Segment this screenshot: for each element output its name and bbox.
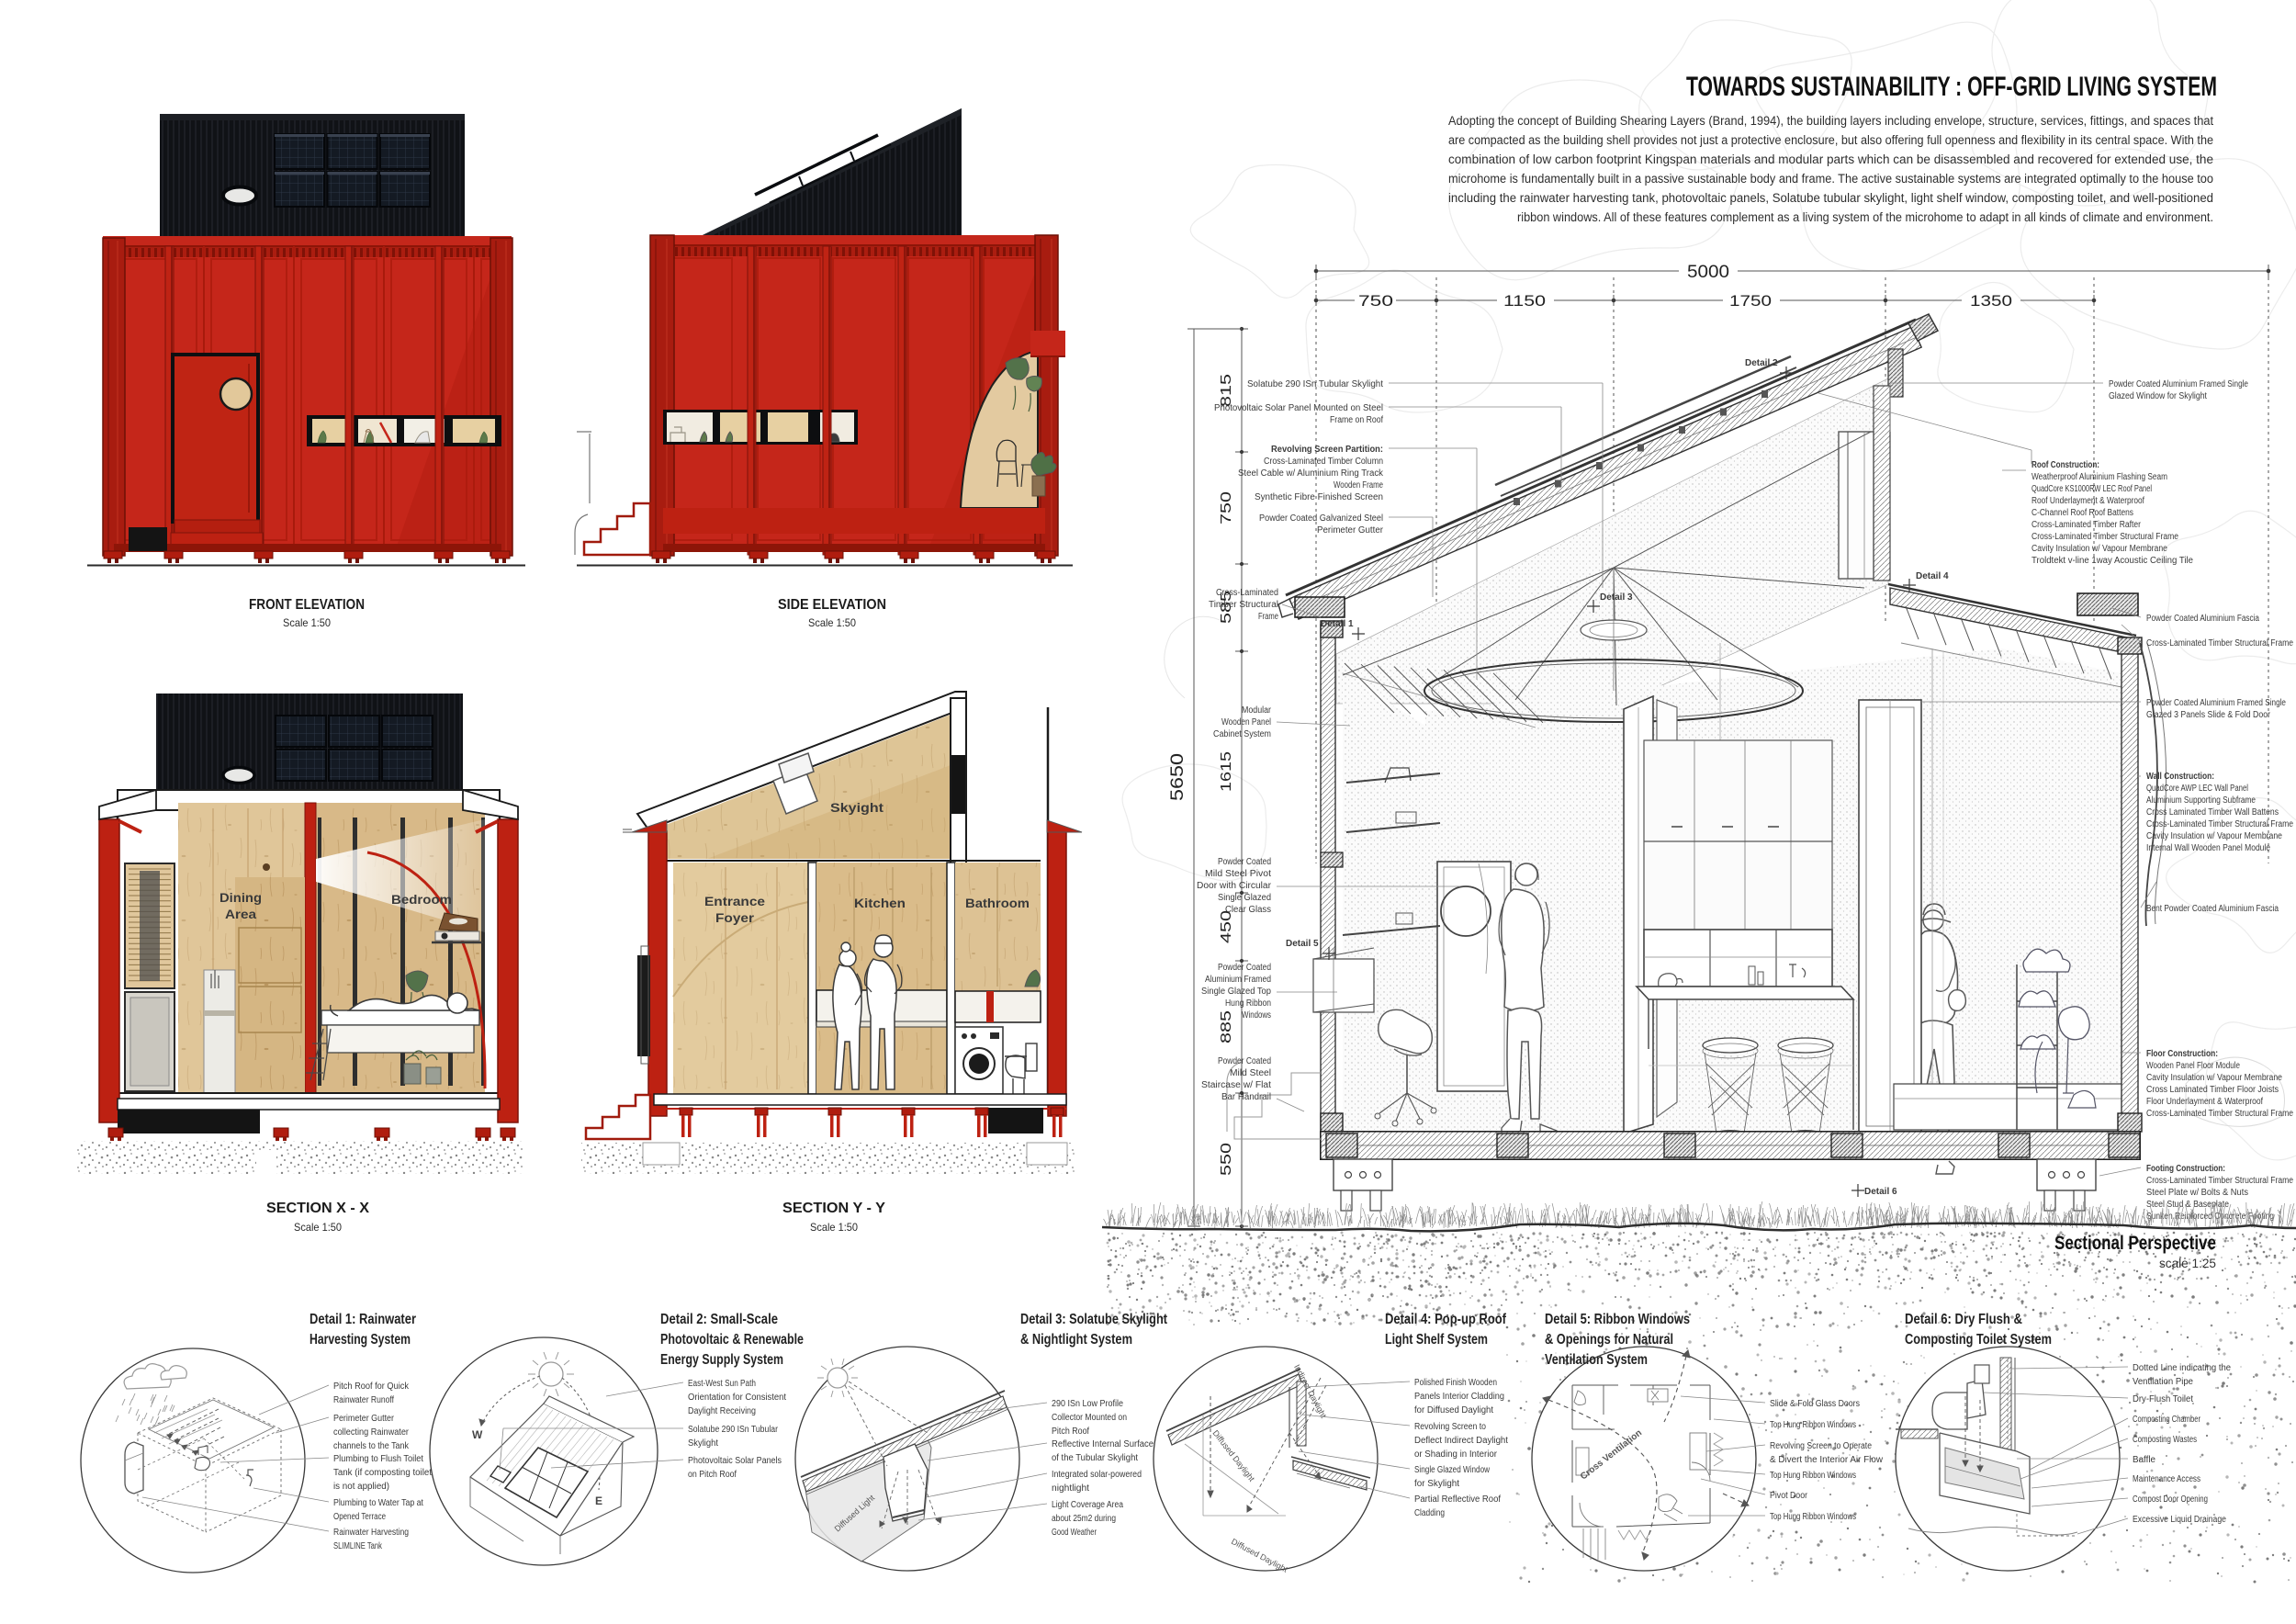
svg-text:Orientation for Consistent: Orientation for Consistent <box>688 1393 786 1403</box>
svg-text:East-West Sun Path: East-West Sun Path <box>688 1379 756 1389</box>
svg-text:1615: 1615 <box>1219 751 1234 792</box>
svg-text:Door with Circular: Door with Circular <box>1197 881 1272 891</box>
svg-text:Cladding: Cladding <box>1414 1508 1445 1518</box>
svg-text:Mild Steel Pivot: Mild Steel Pivot <box>1205 869 1271 879</box>
svg-text:815: 815 <box>1219 374 1234 407</box>
svg-text:Top Hung Ribbon Windows: Top Hung Ribbon Windows <box>1770 1471 1856 1481</box>
svg-text:Cross-Laminated Timber Structu: Cross-Laminated Timber Structural Frame <box>2146 1176 2293 1186</box>
svg-text:Wall Construction:: Wall Construction: <box>2146 772 2214 782</box>
svg-text:750: 750 <box>1358 292 1393 310</box>
svg-text:Opened Terrace: Opened Terrace <box>333 1512 386 1522</box>
svg-text:or Shading in Interior: or Shading in Interior <box>1414 1449 1498 1460</box>
svg-text:Floor Underlayment & Waterproo: Floor Underlayment & Waterproof <box>2146 1097 2263 1107</box>
svg-text:Cross-Laminated Timber Structu: Cross-Laminated Timber Structural Frame <box>2146 1109 2293 1119</box>
svg-text:Pivot Door: Pivot Door <box>1770 1491 1808 1501</box>
svg-text:QuadCore KS1000RW LEC Roof Pan: QuadCore KS1000RW LEC Roof Panel <box>2032 484 2152 494</box>
svg-text:Rainwater Runoff: Rainwater Runoff <box>333 1395 394 1405</box>
svg-text:Compost Door Opening: Compost Door Opening <box>2133 1494 2208 1505</box>
svg-text:Entrance: Entrance <box>704 894 765 908</box>
svg-text:Scale 1:50: Scale 1:50 <box>283 616 331 629</box>
svg-text:SECTION Y - Y: SECTION Y - Y <box>782 1201 885 1216</box>
svg-text:Integrated solar-powered: Integrated solar-powered <box>1052 1470 1142 1480</box>
svg-text:Cavity Insulation w/ Vapour Me: Cavity Insulation w/ Vapour Membrane <box>2146 1073 2282 1083</box>
svg-text:Cavity Insulation w/ Vapour Me: Cavity Insulation w/ Vapour Membrane <box>2146 831 2282 841</box>
svg-text:Deflect Indirect Daylight: Deflect Indirect Daylight <box>1414 1436 1508 1446</box>
svg-text:Detail 3: Solatube Skylight: Detail 3: Solatube Skylight <box>1020 1312 1168 1327</box>
svg-text:Single Glazed: Single Glazed <box>1218 893 1271 903</box>
svg-text:Modular: Modular <box>1242 705 1272 716</box>
svg-text:Dry-Flush Toilet: Dry-Flush Toilet <box>2133 1394 2193 1404</box>
svg-text:Detail 4: Detail 4 <box>1916 571 1949 581</box>
svg-text:Perimeter Gutter: Perimeter Gutter <box>1317 525 1384 536</box>
svg-text:Maintenance Access: Maintenance Access <box>2133 1474 2200 1484</box>
svg-text:Hung Ribbon: Hung Ribbon <box>1225 998 1271 1009</box>
svg-text:Synthetic Fibre Finished Scree: Synthetic Fibre Finished Screen <box>1255 492 1383 502</box>
svg-text:Revolving Screen Partition:: Revolving Screen Partition: <box>1271 445 1383 455</box>
svg-text:Detail 5: Detail 5 <box>1286 939 1319 949</box>
svg-text:Good Weather: Good Weather <box>1052 1528 1097 1538</box>
svg-text:Bar Handrail: Bar Handrail <box>1221 1092 1271 1102</box>
svg-text:Kitchen: Kitchen <box>854 896 906 910</box>
svg-text:QuadCore AWP LEC Wall Panel: QuadCore AWP LEC Wall Panel <box>2146 784 2248 794</box>
svg-text:Roof Construction:: Roof Construction: <box>2032 460 2099 470</box>
svg-text:Roof Underlayment & Waterproof: Roof Underlayment & Waterproof <box>2032 496 2144 506</box>
svg-text:Wooden Panel: Wooden Panel <box>1221 717 1271 727</box>
svg-text:for Skylight: for Skylight <box>1414 1479 1459 1489</box>
svg-text:Detail 6: Detail 6 <box>1864 1187 1897 1197</box>
svg-text:Clear Glass: Clear Glass <box>1225 905 1271 915</box>
svg-text:Foyer: Foyer <box>715 910 755 925</box>
svg-text:Revolving Screen to Operate: Revolving Screen to Operate <box>1770 1441 1872 1451</box>
svg-text:Powder Coated: Powder Coated <box>1218 1056 1271 1066</box>
svg-text:Footing Construction:: Footing Construction: <box>2146 1164 2225 1174</box>
svg-text:Detail 2: Small-Scale: Detail 2: Small-Scale <box>660 1312 778 1327</box>
svg-text:& Openings for Natural: & Openings for Natural <box>1545 1332 1673 1348</box>
svg-text:Wooden Frame: Wooden Frame <box>1334 480 1383 491</box>
svg-text:Powder Coated Aluminium Fascia: Powder Coated Aluminium Fascia <box>2146 614 2259 624</box>
svg-text:Photovoltaic & Renewable: Photovoltaic & Renewable <box>660 1332 804 1348</box>
svg-text:Partial Reflective Roof: Partial Reflective Roof <box>1414 1494 1501 1505</box>
svg-text:5000: 5000 <box>1687 263 1729 282</box>
svg-text:C-Channel Roof Roof Battens: C-Channel Roof Roof Battens <box>2032 508 2133 518</box>
svg-text:Energy Supply System: Energy Supply System <box>660 1352 783 1368</box>
svg-text:Revolving Screen to: Revolving Screen to <box>1414 1422 1486 1432</box>
svg-text:Light Coverage Area: Light Coverage Area <box>1052 1500 1123 1510</box>
svg-text:Wooden Panel Floor Module: Wooden Panel Floor Module <box>2146 1061 2240 1071</box>
svg-text:on Pitch Roof: on Pitch Roof <box>688 1470 737 1480</box>
svg-text:& Nightlight System: & Nightlight System <box>1020 1332 1132 1348</box>
svg-text:Powder Coated Galvanized Steel: Powder Coated Galvanized Steel <box>1259 513 1383 524</box>
svg-text:Harvesting System: Harvesting System <box>310 1332 411 1348</box>
svg-text:290 ISn Low Profile: 290 ISn Low Profile <box>1052 1399 1123 1409</box>
svg-text:Solatube 290 ISn Tubular Skyli: Solatube 290 ISn Tubular Skylight <box>1247 379 1383 389</box>
svg-text:Cabinet System: Cabinet System <box>1213 729 1271 739</box>
svg-text:Cross Laminated Timber Wall Ba: Cross Laminated Timber Wall Battens <box>2146 807 2279 818</box>
svg-text:Cross-Laminated Timber Structu: Cross-Laminated Timber Structural Frame <box>2032 532 2178 542</box>
svg-text:channels to the Tank: channels to the Tank <box>333 1441 410 1451</box>
svg-text:Sectional Perspective: Sectional Perspective <box>2054 1233 2216 1254</box>
svg-text:5650: 5650 <box>1168 753 1187 801</box>
svg-text:Internal Wall Wooden Panel Mod: Internal Wall Wooden Panel Module <box>2146 843 2270 853</box>
svg-text:Detail 1: Rainwater: Detail 1: Rainwater <box>310 1312 416 1327</box>
svg-text:Plumbing to Flush Toilet: Plumbing to Flush Toilet <box>333 1454 423 1464</box>
svg-text:Ventilation System: Ventilation System <box>1545 1352 1648 1368</box>
svg-text:Panels Interior Cladding: Panels Interior Cladding <box>1414 1392 1504 1402</box>
svg-text:750: 750 <box>1219 491 1234 524</box>
svg-text:collecting Rainwater: collecting Rainwater <box>333 1427 410 1438</box>
svg-text:TOWARDS SUSTAINABILITY : OFF-G: TOWARDS SUSTAINABILITY : OFF-GRID LIVING… <box>1686 72 2217 102</box>
svg-text:nightlight: nightlight <box>1052 1483 1089 1494</box>
svg-text:Light Shelf System: Light Shelf System <box>1385 1332 1488 1348</box>
svg-text:Glazed Window for Skylight: Glazed Window for Skylight <box>2109 391 2207 401</box>
svg-text:Powder Coated: Powder Coated <box>1218 857 1271 867</box>
svg-text:Detail 1: Detail 1 <box>1321 619 1354 629</box>
svg-text:Weatherproof Aluminium Flashin: Weatherproof Aluminium Flashing Seam <box>2032 472 2167 482</box>
svg-text:Cross-Laminated Timber Rafter: Cross-Laminated Timber Rafter <box>2032 520 2142 530</box>
svg-text:Composting Wastes: Composting Wastes <box>2133 1435 2197 1445</box>
svg-text:of the Tubular Skylight: of the Tubular Skylight <box>1052 1453 1138 1463</box>
svg-text:Scale 1:50: Scale 1:50 <box>294 1221 342 1234</box>
svg-text:is not applied): is not applied) <box>333 1482 389 1492</box>
svg-text:Ventilation Pipe: Ventilation Pipe <box>2133 1377 2193 1387</box>
svg-text:Rainwater Harvesting: Rainwater Harvesting <box>333 1528 409 1538</box>
svg-text:Mild Steel: Mild Steel <box>1230 1068 1271 1078</box>
svg-text:Baffle: Baffle <box>2133 1455 2155 1465</box>
svg-text:Top Hung Ribbon Windows: Top Hung Ribbon Windows <box>1770 1512 1856 1522</box>
svg-text:combination of low carbon foot: combination of low carbon footprint King… <box>1448 152 2213 166</box>
svg-text:Floor Construction:: Floor Construction: <box>2146 1049 2218 1059</box>
svg-text:Dotted Line indicating the: Dotted Line indicating the <box>2133 1363 2231 1373</box>
svg-text:about 25m2 during: about 25m2 during <box>1052 1514 1116 1524</box>
svg-text:SECTION X - X: SECTION X - X <box>266 1201 369 1216</box>
svg-text:Aluminium Framed: Aluminium Framed <box>1205 975 1271 985</box>
svg-text:Cross-Laminated Timber Column: Cross-Laminated Timber Column <box>1264 457 1383 467</box>
svg-text:550: 550 <box>1219 1143 1234 1176</box>
svg-text:SLIMLINE Tank: SLIMLINE Tank <box>333 1541 383 1551</box>
svg-text:1750: 1750 <box>1729 292 1772 310</box>
svg-text:Detail 2: Detail 2 <box>1745 358 1778 368</box>
svg-text:Reflective Internal Surface: Reflective Internal Surface <box>1052 1439 1154 1449</box>
svg-text:Photovoltaic Solar Panels: Photovoltaic Solar Panels <box>688 1456 782 1466</box>
svg-text:Scale 1:50: Scale 1:50 <box>808 616 856 629</box>
svg-text:Windows: Windows <box>1242 1010 1271 1021</box>
svg-text:FRONT ELEVATION: FRONT ELEVATION <box>249 597 365 613</box>
svg-text:& Divert the Interior Air Flow: & Divert the Interior Air Flow <box>1770 1455 1884 1465</box>
svg-text:Adopting the concept of Buildi: Adopting the concept of Building Shearin… <box>1448 114 2213 128</box>
svg-text:Plumbing to Water Tap at: Plumbing to Water Tap at <box>333 1498 423 1508</box>
svg-text:Aluminium Supporting Subframe: Aluminium Supporting Subframe <box>2146 795 2256 806</box>
svg-text:450: 450 <box>1219 910 1234 943</box>
svg-text:Bedroom: Bedroom <box>391 892 452 907</box>
svg-text:Area: Area <box>225 907 256 921</box>
svg-text:ribbon windows. All of these f: ribbon windows. All of these features co… <box>1517 210 2213 224</box>
svg-text:Detail 5: Ribbon Windows: Detail 5: Ribbon Windows <box>1545 1312 1690 1327</box>
svg-text:Powder Coated: Powder Coated <box>1218 963 1271 973</box>
svg-text:Top Hung Ribbon Windows: Top Hung Ribbon Windows <box>1770 1420 1856 1430</box>
svg-text:Cavity Insulation w/ Vapour Me: Cavity Insulation w/ Vapour Membrane <box>2032 544 2167 554</box>
svg-text:Excessive Liquid Drainage: Excessive Liquid Drainage <box>2133 1515 2226 1525</box>
svg-text:microhome is fundamentally bui: microhome is fundamentally built in a pa… <box>1448 172 2213 186</box>
svg-text:W: W <box>472 1428 483 1441</box>
svg-text:Composting Toilet System: Composting Toilet System <box>1905 1332 2052 1348</box>
svg-text:Skyight: Skyight <box>830 800 884 815</box>
svg-text:Collector Mounted on: Collector Mounted on <box>1052 1413 1127 1423</box>
svg-text:Glazed 3 Panels Slide & Fold D: Glazed 3 Panels Slide & Fold Door <box>2146 710 2271 720</box>
svg-text:Composting Chamber: Composting Chamber <box>2133 1415 2201 1425</box>
svg-text:Single Glazed Top: Single Glazed Top <box>1201 987 1271 997</box>
svg-text:885: 885 <box>1219 1010 1234 1043</box>
svg-text:Pitch Roof for Quick: Pitch Roof for Quick <box>333 1382 410 1392</box>
svg-text:Powder Coated Aluminium Framed: Powder Coated Aluminium Framed Single <box>2146 698 2286 708</box>
svg-text:Tank (if composting toilet: Tank (if composting toilet <box>333 1468 432 1478</box>
svg-text:Detail 3: Detail 3 <box>1600 592 1633 603</box>
svg-text:Frame on Roof: Frame on Roof <box>1330 415 1383 425</box>
svg-text:Steel Plate w/ Bolts & Nuts: Steel Plate w/ Bolts & Nuts <box>2146 1188 2248 1198</box>
svg-text:Skylight: Skylight <box>688 1438 718 1449</box>
svg-text:Daylight Receiving: Daylight Receiving <box>688 1406 756 1416</box>
svg-text:Cross Laminated Timber Floor J: Cross Laminated Timber Floor Joists <box>2146 1085 2279 1095</box>
svg-text:Polished Finish Wooden: Polished Finish Wooden <box>1414 1378 1497 1388</box>
svg-text:SIDE ELEVATION: SIDE ELEVATION <box>778 597 886 613</box>
svg-text:1350: 1350 <box>1970 292 2012 310</box>
svg-text:Bent Powder Coated Aluminium F: Bent Powder Coated Aluminium Fascia <box>2146 904 2279 914</box>
svg-text:Slide & Fold Glass Doors: Slide & Fold Glass Doors <box>1770 1399 1860 1409</box>
svg-text:Detail 6: Dry Flush &: Detail 6: Dry Flush & <box>1905 1312 2022 1327</box>
svg-text:Cross-Laminated: Cross-Laminated <box>1216 588 1278 598</box>
svg-text:Troldtekt v-line 1way Acoustic: Troldtekt v-line 1way Acoustic Ceiling T… <box>2032 556 2193 566</box>
svg-text:Solatube 290 ISn Tubular: Solatube 290 ISn Tubular <box>688 1425 779 1435</box>
svg-text:E: E <box>595 1494 602 1507</box>
svg-text:Scale 1:50: Scale 1:50 <box>810 1221 858 1234</box>
svg-text:scale 1:25: scale 1:25 <box>2159 1256 2216 1270</box>
svg-text:Frame: Frame <box>1258 612 1278 622</box>
svg-text:Single Glazed Window: Single Glazed Window <box>1414 1465 1491 1475</box>
svg-text:Steel Cable w/ Aluminium Ring: Steel Cable w/ Aluminium Ring Track <box>1238 468 1384 479</box>
svg-text:Powder Coated Aluminium Framed: Powder Coated Aluminium Framed Single <box>2109 379 2248 389</box>
svg-text:for Diffused Daylight: for Diffused Daylight <box>1414 1405 1493 1415</box>
svg-text:Perimeter Gutter: Perimeter Gutter <box>333 1414 395 1424</box>
svg-text:are compacted as the building: are compacted as the building shell prov… <box>1448 133 2213 147</box>
svg-text:1150: 1150 <box>1503 292 1546 310</box>
svg-text:Timber Structural: Timber Structural <box>1209 600 1278 610</box>
svg-text:Pitch Roof: Pitch Roof <box>1052 1427 1089 1437</box>
svg-text:Bathroom: Bathroom <box>965 896 1030 910</box>
svg-text:Photovoltaic Solar Panel Mount: Photovoltaic Solar Panel Mounted on Stee… <box>1214 403 1383 413</box>
svg-text:Cross-Laminated Timber Structu: Cross-Laminated Timber Structural Frame <box>2146 638 2293 648</box>
svg-text:Staircase w/ Flat: Staircase w/ Flat <box>1201 1080 1271 1090</box>
svg-text:Detail 4: Pop-up Roof: Detail 4: Pop-up Roof <box>1385 1312 1507 1327</box>
svg-text:Dining: Dining <box>219 890 262 905</box>
svg-text:including the rainwater harves: including the rainwater harvesting tank,… <box>1448 191 2213 205</box>
svg-text:Cross-Laminated Timber Structu: Cross-Laminated Timber Structural Frame <box>2146 819 2293 829</box>
